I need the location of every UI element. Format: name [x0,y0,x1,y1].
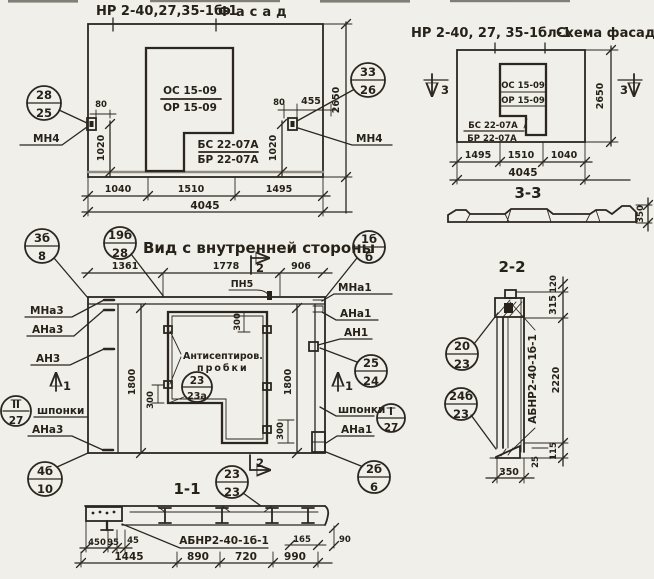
facade-dim-1040: 1040 [105,184,132,195]
inner-callout-i27-bot: 27 [384,422,399,434]
facade-drawing: НР 2-40,27,35-1б-1 Фасад ОС 15-09 ОР 15-… [20,4,392,217]
facade-callout-left-bot: 25 [36,106,52,120]
inner-dim-300-left: 300 [146,391,156,409]
facade-door-mark-bot: БР 22-07А [197,154,259,166]
section-2-2-dim-25: 25 [531,456,541,468]
inner-callout-plug-top: 23 [190,375,205,387]
facade-callout-left-top: 28 [36,88,52,102]
inner-callout-1b6-top: 1б [361,232,377,246]
section-3-3: 3-3 350 [448,184,653,231]
section-1-1-dim-45: 45 [127,536,139,546]
scheme-dim-4045: 4045 [508,167,537,179]
section-2-2-callout-2023-top: 20 [454,339,470,353]
scheme-drawing: НР 2-40, 27, 35-1бл-1 Схема фасада ОС 15… [411,26,654,185]
section-2-2-dim-350: 350 [499,467,519,478]
panel-drawing-svg: НР 2-40,27,35-1б-1 Фасад ОС 15-09 ОР 15-… [0,0,654,579]
section-1-1: 1-1 23 23 450 95 45 165 90 1445 890 720 … [75,466,351,568]
facade-dim-455: 455 [301,96,321,107]
inner-callout-plug-bot: 23а [187,391,207,402]
section-2-2-callout-2023-bot: 23 [454,357,470,371]
inner-callout-1b6-bot: б [365,250,373,264]
inner-dim-300-top: 300 [233,313,243,331]
section-3-3-label: 3-3 [514,184,541,202]
facade-anchor-right-label: МН4 [356,133,383,145]
section-1-1-dim-95: 95 [107,538,119,548]
section-1-1-dim-890: 890 [187,551,209,563]
facade-callout-right-bot: 26 [360,83,376,97]
section-3-3-dim-350: 350 [636,205,646,223]
scheme-window-mark-top: ОС 15-09 [501,81,545,91]
section-1-1-left-end [86,507,122,521]
inner-marker-1-left: 1 [63,379,71,393]
section-1-1-dim-990: 990 [284,551,306,563]
scheme-marker-3-left: 3 [441,83,449,97]
facade-title-code: НР 2-40,27,35-1б-1 [96,4,237,19]
section-1-1-panel-mark: АБНР2-40-1б-1 [179,535,269,547]
inner-callout-2b6-top: 2б [366,462,382,476]
inner-callout-2524-bot: 24 [363,374,379,388]
scheme-door-mark-bot: БР 22-07А [467,134,517,144]
scheme-dim-1510: 1510 [508,150,535,161]
scheme-title-code: НР 2-40, 27, 35-1бл-1 [411,26,571,41]
scheme-window-mark-bot: ОР 15-09 [501,96,545,106]
section-2-2-dim-115: 115 [549,442,559,460]
scheme-dim-1040: 1040 [551,150,578,161]
inner-callout-4b10-bot: 10 [37,482,53,496]
scheme-dim-2650: 2650 [595,82,606,109]
section-2-2-panel-mark: АБНР2-40-1б-1 [527,334,539,424]
inner-callout-4b10-top: 4б [37,464,53,478]
inner-label-ana3-low: АНа3 [32,424,63,436]
section-1-1-dim-450: 450 [88,538,106,548]
scheme-dim-1495: 1495 [465,150,491,161]
blueprint-sheet: НР 2-40,27,35-1б-1 Фасад ОС 15-09 ОР 15-… [0,0,654,579]
inner-opening-outer [168,312,267,443]
facade-door-mark-top: БС 22-07А [197,139,259,151]
facade-dim-4045: 4045 [190,200,219,212]
inner-anchor-an1 [309,342,318,351]
section-1-1-callout-bot: 23 [224,485,240,499]
facade-dim-1020-left: 1020 [96,134,107,161]
inner-dim-1361: 1361 [112,261,138,272]
facade-dim-1495: 1495 [266,184,292,195]
section-2-2-callout-24b23-top: 24б [449,389,473,403]
inner-dim-1778: 1778 [213,261,240,272]
inner-dim-1800-right: 1800 [283,368,294,395]
inner-callout-3b8-bot: 8 [38,249,46,263]
section-2-2-label: 2-2 [498,258,525,276]
facade-dim-80-right: 80 [273,98,285,108]
facade-anchor-left-label: МН4 [33,133,60,145]
inner-dim-300-right: 300 [276,422,286,440]
inner-callout-ii27-top: II [12,399,20,411]
inner-label-mna1: МНа1 [338,282,372,294]
scheme-title-name: Схема фасада [556,26,654,41]
facade-dim-1510: 1510 [178,184,205,195]
facade-callout-right-top: 33 [360,65,376,79]
section-3-3-profile [448,206,636,222]
inner-callout-3b8-top: 3б [34,231,50,245]
section-1-1-label: 1-1 [173,480,200,498]
facade-window-mark-top: ОС 15-09 [163,85,217,97]
scan-artifact [8,0,570,3]
inner-marker-1-right: 1 [345,379,353,393]
inner-view-title: Вид с внутренней стороны [143,239,375,257]
facade-dim-80-left: 80 [95,100,107,110]
inner-view-drawing: 3б 8 19б 28 Вид с внутренней стороны 1б … [1,227,405,496]
section-1-1-callout-top: 23 [224,467,240,481]
section-1-1-dim-165: 165 [293,535,311,545]
inner-callout-19b28-top: 19б [108,228,132,242]
inner-callout-2524-top: 25 [363,356,379,370]
facade-window-mark-bot: ОР 15-09 [163,102,217,114]
inner-callout-i27-top: I [389,406,393,418]
section-2-2-dim-2220: 2220 [551,366,562,393]
inner-dim-1800-left: 1800 [127,368,138,395]
inner-note-line1: Антисептиров. [183,351,263,362]
section-2-2-callout-24b23-bot: 23 [453,407,469,421]
inner-label-an3: АН3 [36,353,60,365]
section-2-2-dim-315: 315 [548,295,559,315]
inner-marker-2-bottom: 2 [256,456,264,470]
inner-note-line2: пробки [197,363,249,374]
inner-label-an1: АН1 [344,327,368,339]
inner-callout-ii27-bot: 27 [9,415,24,427]
inner-label-pn5: ПН5 [231,279,254,290]
section-1-1-dim-720: 720 [235,551,257,563]
inner-label-ana3: АНа3 [32,324,63,336]
inner-marker-2-top: 2 [256,261,264,275]
facade-title-name: Фасад [218,5,292,20]
facade-dim-2650: 2650 [331,86,342,113]
inner-label-ana1: АНа1 [340,308,371,320]
section-1-1-dim-90: 90 [339,535,351,545]
inner-label-shponki-left: шпонки [37,405,84,417]
inner-callout-19b28-bot: 28 [112,246,128,260]
section-2-2-dim-120: 120 [549,275,559,293]
section-1-1-ribs [159,508,314,523]
section-2-2: 2-2 120 315 2220 115 25 350 АБНР2-40-1б-… [445,258,568,483]
scheme-door-mark-top: БС 22-07А [468,121,518,131]
inner-callout-2b6-bot: 6 [370,480,378,494]
inner-dim-906: 906 [291,261,311,272]
scheme-marker-3-right: 3 [620,83,628,97]
facade-dim-1020-right: 1020 [268,134,279,161]
inner-label-mna3: МНа3 [30,305,64,317]
section-1-1-dim-1445: 1445 [114,551,143,563]
inner-label-ana1-low: АНа1 [341,424,372,436]
